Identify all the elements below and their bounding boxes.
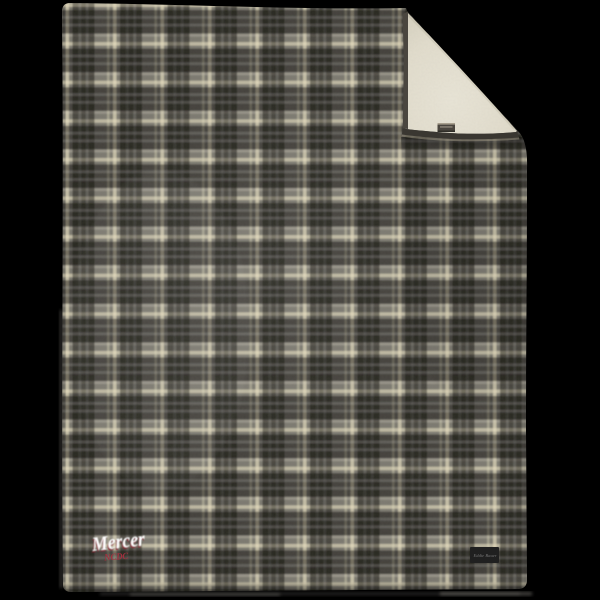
svg-text:Eddie Bauer: Eddie Bauer [473,553,497,558]
svg-text:NCDC: NCDC [103,552,129,564]
